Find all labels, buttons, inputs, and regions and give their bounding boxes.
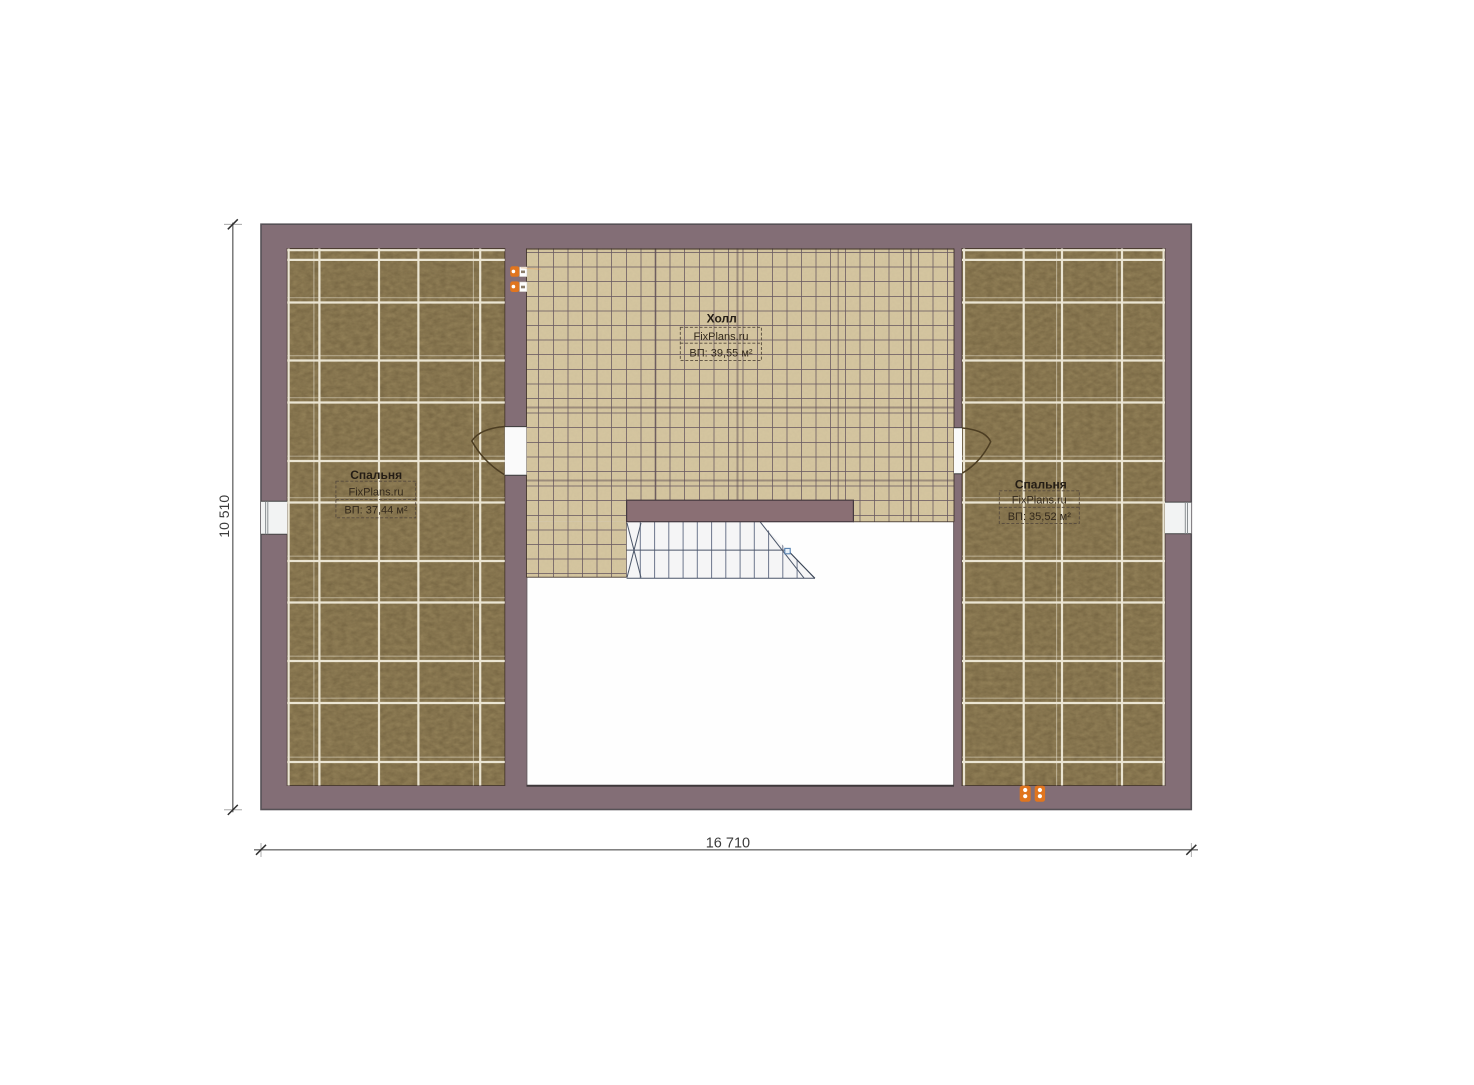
svg-text:ВП: 35,52 м²: ВП: 35,52 м² <box>1008 511 1072 523</box>
svg-text:16 710: 16 710 <box>706 835 750 851</box>
svg-text:Спальня: Спальня <box>350 468 402 482</box>
svg-text:10 510: 10 510 <box>216 495 232 538</box>
svg-text:Спальня: Спальня <box>1015 477 1067 491</box>
svg-text:ВП: 37,44 м²: ВП: 37,44 м² <box>344 505 408 517</box>
svg-text:FixPlans.ru: FixPlans.ru <box>348 487 403 499</box>
svg-text:FixPlans.ru: FixPlans.ru <box>1012 495 1067 507</box>
svg-text:ВП: 39,55 м²: ВП: 39,55 м² <box>689 348 753 360</box>
svg-text:FixPlans.ru: FixPlans.ru <box>693 331 748 343</box>
svg-text:Холл: Холл <box>707 312 737 326</box>
